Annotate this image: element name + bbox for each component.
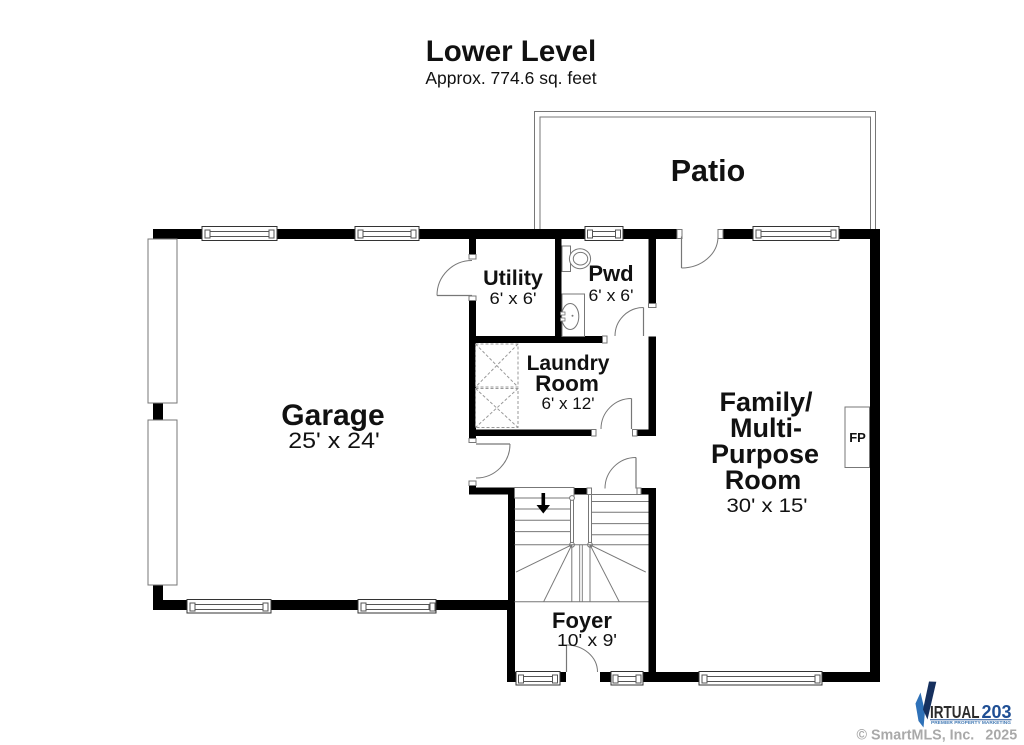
- svg-text:PREMIER PROPERTY MARKETING: PREMIER PROPERTY MARKETING: [931, 720, 1011, 725]
- svg-text:Pwd: Pwd: [588, 261, 633, 286]
- svg-text:6' x 6': 6' x 6': [490, 289, 537, 308]
- svg-text:6' x 6': 6' x 6': [589, 286, 634, 305]
- svg-text:Patio: Patio: [671, 154, 746, 188]
- svg-text:203: 203: [982, 702, 1012, 722]
- svg-text:Approx. 774.6 sq. feet: Approx. 774.6 sq. feet: [425, 68, 596, 88]
- svg-text:6' x 12': 6' x 12': [542, 395, 595, 413]
- svg-text:© SmartMLS, Inc. 2025: © SmartMLS, Inc. 2025: [857, 728, 1018, 744]
- svg-text:10' x 9': 10' x 9': [557, 630, 617, 650]
- svg-text:30' x 15': 30' x 15': [727, 495, 808, 517]
- svg-text:Room: Room: [725, 465, 802, 495]
- svg-text:IRTUAL: IRTUAL: [930, 702, 980, 722]
- svg-text:25' x 24': 25' x 24': [288, 428, 380, 453]
- svg-text:Room: Room: [535, 371, 599, 396]
- svg-text:Utility: Utility: [483, 266, 543, 290]
- svg-text:FP: FP: [849, 430, 866, 445]
- svg-text:Lower Level: Lower Level: [426, 35, 597, 68]
